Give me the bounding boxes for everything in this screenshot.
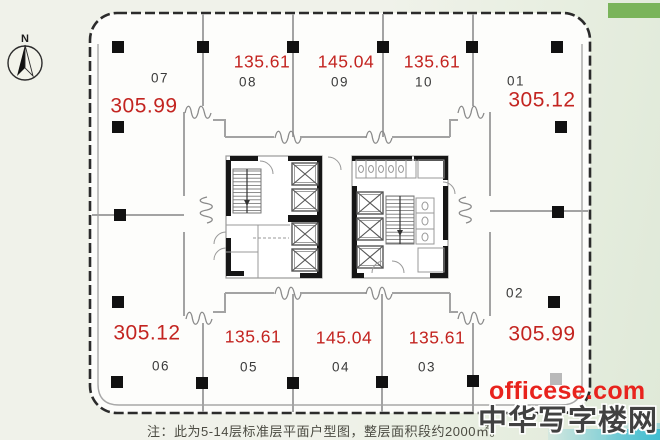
compass-icon: N xyxy=(8,33,42,80)
unit-number-08: 08 xyxy=(239,75,257,89)
unit-number-05: 05 xyxy=(240,360,258,374)
unit-area-05: 135.61 xyxy=(225,328,282,346)
unit-area-02: 305.99 xyxy=(508,324,575,345)
core-left xyxy=(214,156,322,278)
unit-area-03: 135.61 xyxy=(409,329,466,347)
unit-area-06: 305.12 xyxy=(113,323,180,344)
floor-plan-page: N 07 305.99 135.61 08 145.04 09 135.61 1… xyxy=(0,0,660,440)
unit-area-10: 135.61 xyxy=(404,53,461,71)
unit-number-09: 09 xyxy=(331,75,349,89)
unit-area-04: 145.04 xyxy=(316,329,373,347)
floor-plan-note: 注：此为5-14层标准层平面户型图，整层面积段约2000㎡。 xyxy=(147,421,503,440)
stair-icon xyxy=(233,169,261,213)
unit-number-02: 02 xyxy=(506,286,524,300)
unit-number-07: 07 xyxy=(151,71,169,85)
unit-number-04: 04 xyxy=(332,360,350,374)
unit-number-06: 06 xyxy=(152,359,170,373)
elevator-icon xyxy=(357,192,383,268)
stair-icon xyxy=(386,196,414,244)
unit-number-01: 01 xyxy=(507,74,525,88)
watermark-name: 中华写字楼网 xyxy=(478,397,658,439)
unit-area-07: 305.99 xyxy=(110,96,177,117)
unit-area-08: 135.61 xyxy=(234,53,291,71)
unit-number-03: 03 xyxy=(418,360,436,374)
unit-area-01: 305.12 xyxy=(508,90,575,111)
unit-number-10: 10 xyxy=(415,75,433,89)
unit-area-09: 145.04 xyxy=(318,53,375,71)
compass-north-label: N xyxy=(21,33,29,45)
